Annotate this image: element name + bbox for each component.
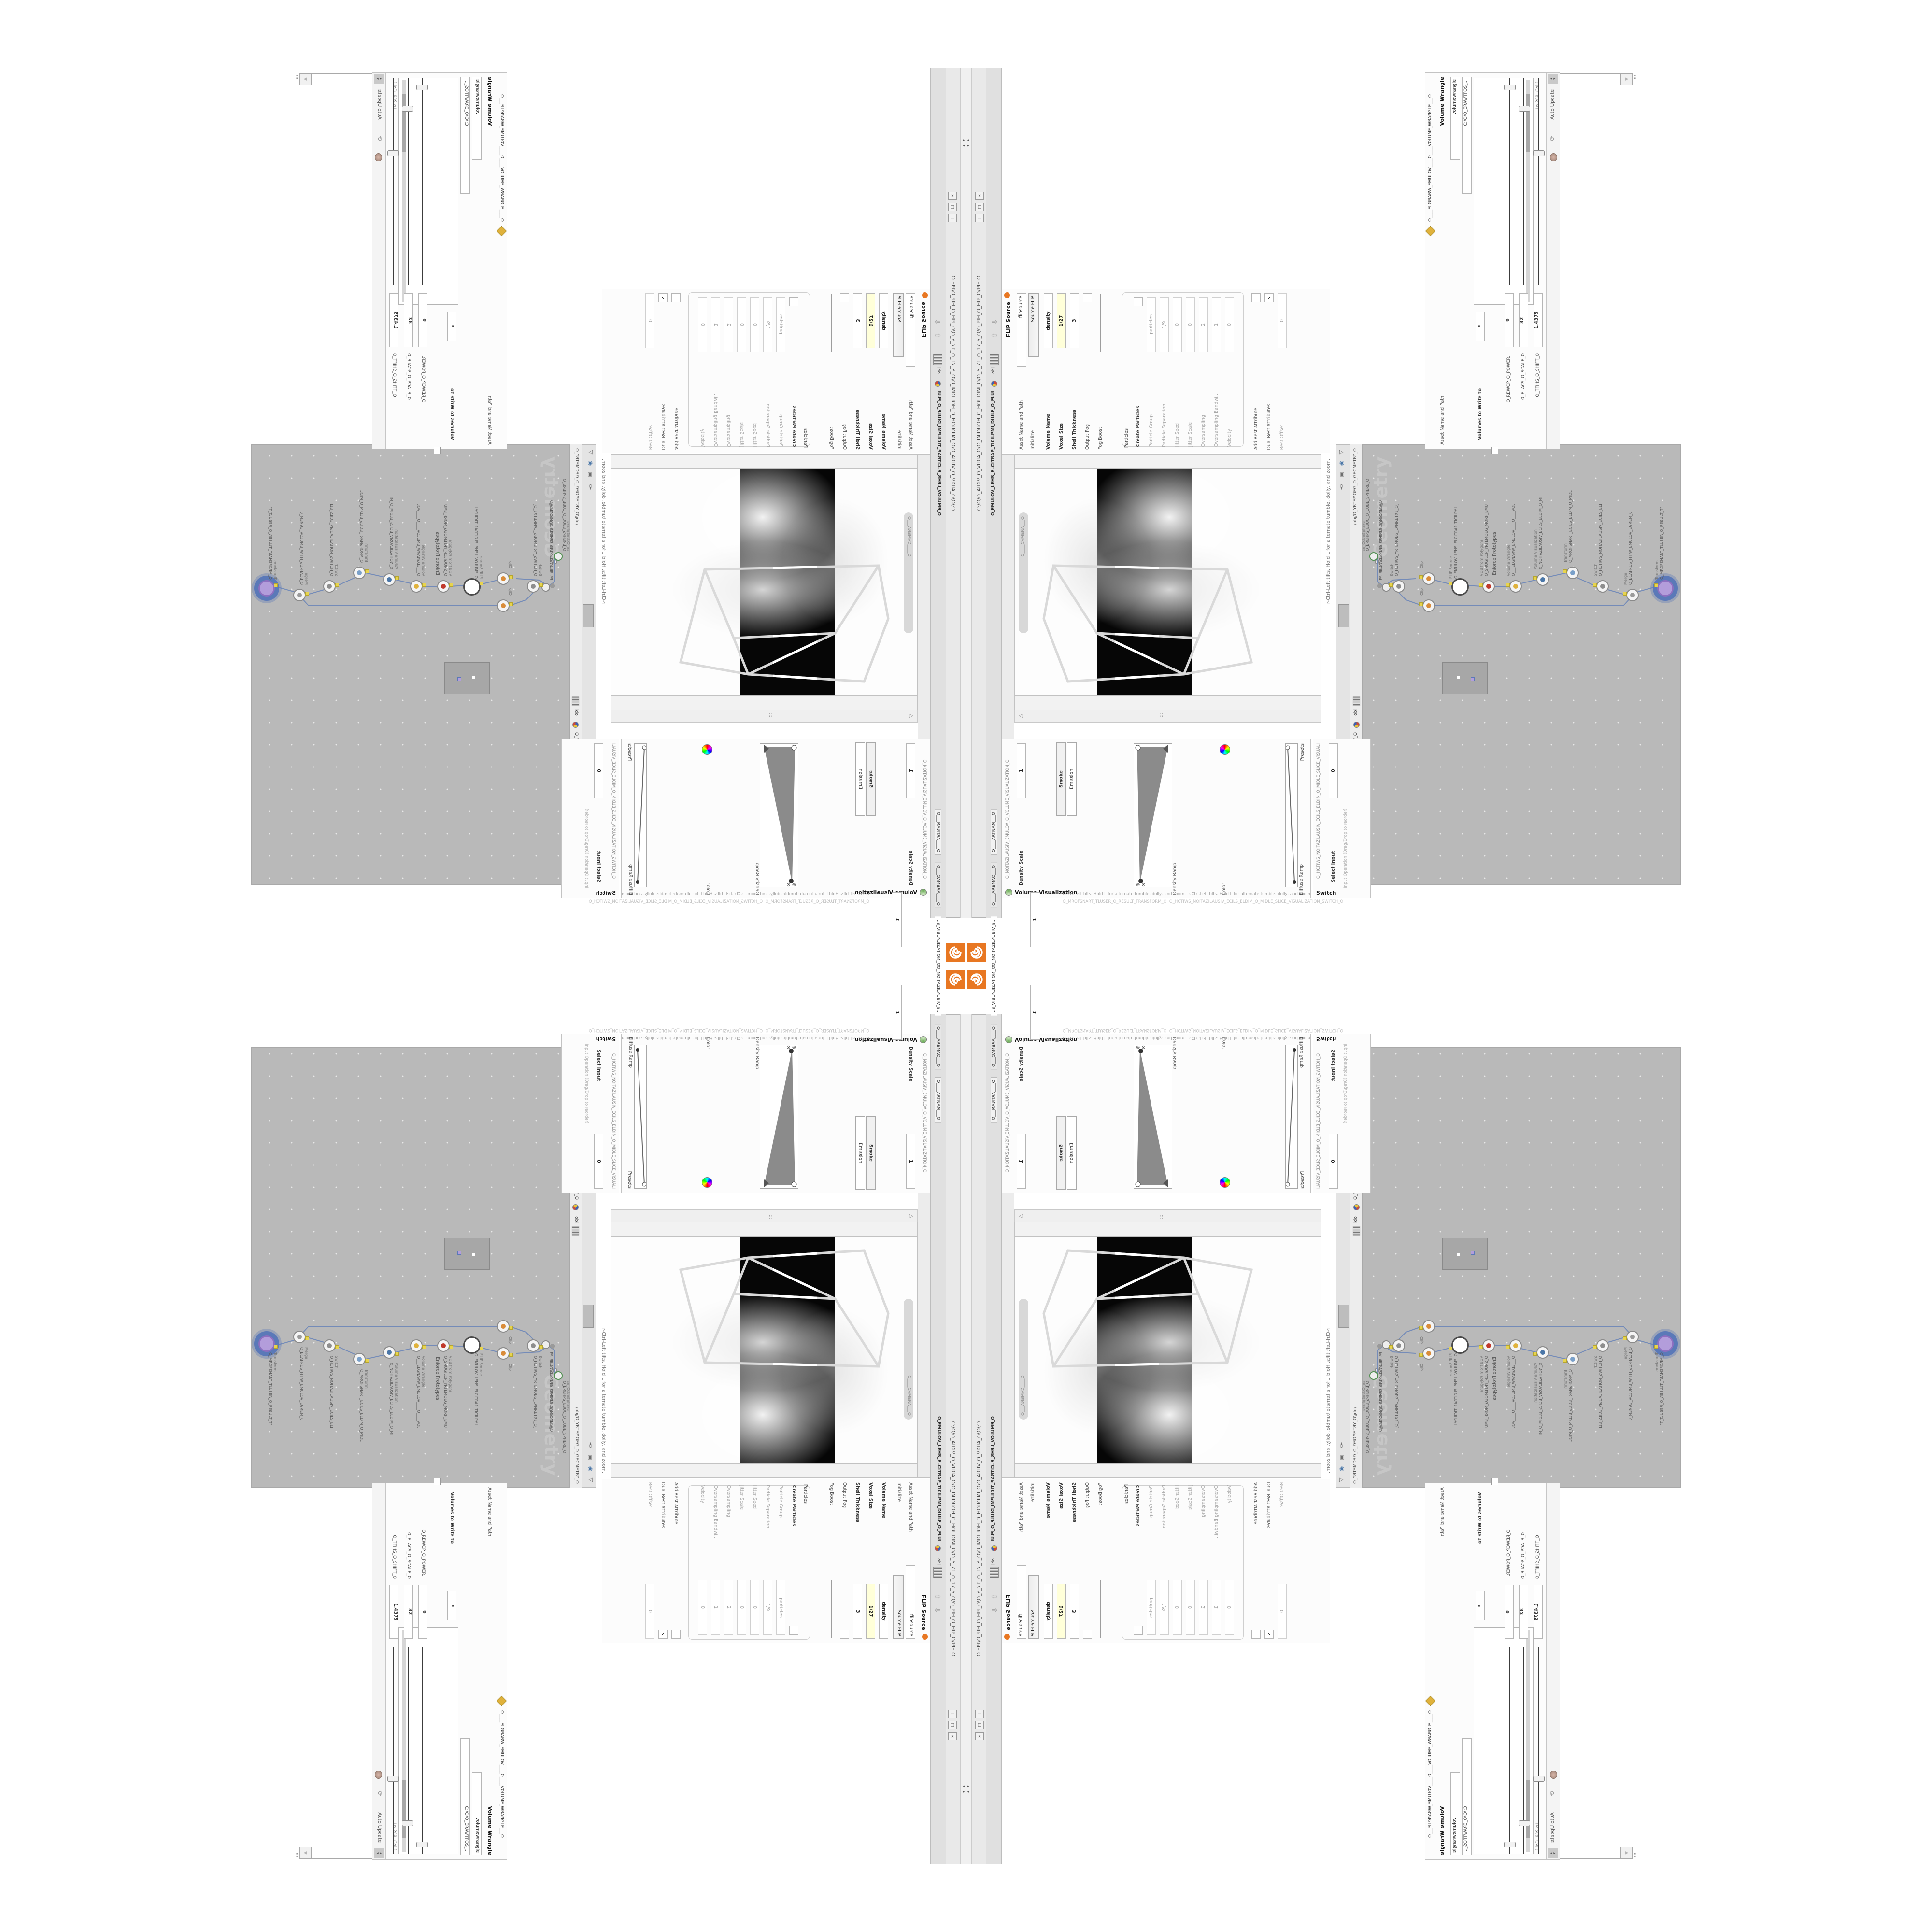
spare-param-value[interactable]: 32	[1519, 293, 1528, 347]
camera-name-pill[interactable]: O____CAMERA___O	[904, 512, 913, 633]
pane-splitter-rail[interactable]: ◂ ▸ ◂ ▸	[960, 1014, 966, 1864]
node-flag[interactable]	[1654, 1345, 1658, 1349]
display-option-icon[interactable]	[1151, 1466, 1163, 1477]
node-flag[interactable]	[1563, 1359, 1567, 1363]
pin-icon[interactable]: ⚲	[1339, 1442, 1344, 1449]
param-column[interactable]: 2 Oversampling	[722, 293, 735, 450]
density-scale-field[interactable]: 1	[1017, 743, 1026, 798]
play-icon[interactable]: ▷	[589, 1477, 593, 1483]
pin-icon[interactable]: ⚲	[588, 1442, 593, 1449]
network-node[interactable]: O_ECAFRUS_HTIW_EMULOV_EGREM_O_MERGE_VOLU…	[293, 589, 306, 601]
param-column[interactable]: Fog Boost	[825, 1479, 838, 1643]
selection-tool-icon[interactable]	[877, 697, 890, 708]
target-icon[interactable]: ◉	[588, 1466, 593, 1473]
volumes-write-field[interactable]: *	[1476, 1591, 1485, 1620]
param-value-field[interactable]: 3	[853, 1584, 862, 1639]
node-flag[interactable]	[365, 1359, 369, 1363]
refresh-icon[interactable]: ⟳	[376, 136, 383, 141]
selection-tool-icon[interactable]	[1083, 1224, 1095, 1235]
tab-volume-wrangle-pane[interactable]: O____ELGNARW_EMULOV____O____VOLUME_WRANG…	[1428, 77, 1433, 222]
selection-tool-icon[interactable]	[1096, 697, 1109, 708]
network-node[interactable]: O_MROFSNART_ECILS_ELDIM_O_MIDLE_SLICE_TR…	[1566, 1353, 1579, 1365]
param-value-field[interactable]	[840, 293, 849, 302]
color-wheel-icon[interactable]	[1220, 744, 1230, 755]
presets2-button[interactable]: Presets	[1300, 1171, 1305, 1189]
param-value-field[interactable]: ✔	[658, 293, 668, 302]
param-value-field[interactable]: ✔	[1264, 293, 1274, 302]
node-flag[interactable]	[1449, 582, 1452, 585]
display-option-icon[interactable]	[1042, 1466, 1055, 1477]
tab-camera[interactable]: O____AREMAC___O	[935, 863, 941, 908]
selection-tool-icon[interactable]	[769, 697, 781, 708]
selection-tool-icon[interactable]	[782, 1224, 795, 1235]
nav-back-icon[interactable]: ◁	[909, 1213, 913, 1220]
param-value-field[interactable]: 1/27	[1057, 293, 1066, 348]
param-value-field[interactable]: 0	[1225, 297, 1234, 352]
param-column[interactable]: Fog Boost	[1094, 1479, 1107, 1643]
param-column[interactable]: Add Rest Attribute	[1250, 289, 1263, 453]
selection-tool-icon[interactable]	[864, 697, 876, 708]
network-node[interactable]: O_SNOGILOP_YRTEMOEG_MORF_EMULOV_BDV_O_VD…	[437, 1339, 450, 1352]
selection-tool-icon[interactable]	[742, 1224, 754, 1235]
display-option-icon[interactable]	[1151, 455, 1163, 466]
node-flag[interactable]	[509, 602, 513, 606]
volumes-write-column[interactable]: * Volumes to Write to	[445, 308, 458, 443]
asset-name-field[interactable]: flipsource	[906, 293, 915, 367]
display-option-icon[interactable]	[1056, 1466, 1068, 1477]
obj-slate-icon[interactable]	[933, 1567, 942, 1578]
display-option-icon[interactable]	[1191, 455, 1204, 466]
param-column[interactable]: 0 Velocity	[1223, 1482, 1236, 1639]
param-column[interactable]: 1 Oversampling Bandwi...	[1210, 293, 1223, 450]
tab-volume-wrangle-pane[interactable]: O____ELGNARW_EMULOV____O____VOLUME_WRANG…	[499, 1710, 504, 1855]
param-column[interactable]: 0 Rest Offset	[643, 289, 656, 453]
window-titlebar[interactable]: × □ — C:/O/O_AIDIV_O_VIDIA_O/O_INIDUOH_O…	[946, 68, 960, 918]
diffuse-ramp-editor[interactable]	[634, 1045, 647, 1189]
network-node[interactable]: JBD.W03.PETS.TRPO.LS.D_5SUNEG_O_GENESIS_…	[1377, 1344, 1382, 1349]
pane-scroll-handle[interactable]	[1338, 604, 1349, 627]
density-scale-column[interactable]: 1 Density Scale	[1015, 1044, 1028, 1193]
target-icon[interactable]: ◉	[1339, 1466, 1344, 1473]
selection-tool-icon[interactable]	[1123, 1224, 1136, 1235]
diffuse-ramp-editor[interactable]	[1285, 1045, 1298, 1189]
obj-badge-label[interactable]: obj	[991, 367, 996, 374]
selection-tool-icon[interactable]	[1083, 697, 1095, 708]
tab-visualization[interactable]: O_NOITAZILAUSIV_E...	[991, 966, 997, 1016]
minimize-icon[interactable]: —	[975, 214, 984, 222]
param-value-field[interactable]: 1	[1212, 297, 1221, 352]
spare-param-slider[interactable]: 6O_REWOP_O_POWER...	[1503, 78, 1516, 445]
tab-visualization[interactable]: O_NOITAZILAUSIV_E...	[991, 916, 997, 966]
diffuse-ramp-editor[interactable]	[1285, 743, 1298, 887]
selection-tool-icon[interactable]	[837, 697, 849, 708]
display-option-icon[interactable]	[701, 455, 714, 466]
param-column[interactable]: Output Fog	[1081, 1479, 1094, 1643]
display-option-icon[interactable]	[1083, 1466, 1095, 1477]
node-flag[interactable]	[395, 576, 399, 580]
shadow-scale-field[interactable]: 1	[893, 892, 902, 947]
auto-update-selector[interactable]: Auto Update	[377, 1812, 382, 1843]
enforce-prototypes-checkbox[interactable]	[434, 447, 441, 454]
presets2-button[interactable]: Presets	[627, 1171, 632, 1189]
volumes-write-column[interactable]: * Volumes to Write to	[1474, 308, 1487, 443]
selection-tool-icon[interactable]	[877, 1224, 890, 1235]
maximize-icon[interactable]: □	[948, 1721, 957, 1729]
param-column[interactable]: Output Fog	[1081, 289, 1094, 453]
param-value-field[interactable]: particles	[776, 1580, 785, 1635]
wrangle-path-field[interactable]: C:/O/O_ERAWTFOS_...	[1462, 1738, 1472, 1855]
presets2-button[interactable]: Presets	[1300, 743, 1305, 761]
window-titlebar[interactable]: × □ — C:/O/O_AIDIV_O_VIDIA_O/O_INIDUOH_O…	[972, 68, 986, 918]
display-option-icon[interactable]	[1218, 455, 1231, 466]
network-node[interactable]: Clip	[497, 599, 510, 612]
playbar-next-button[interactable]: ▶	[1621, 73, 1633, 85]
network-node[interactable]: Clip	[1422, 1347, 1435, 1360]
network-node[interactable]: JBD.W03.PETS.TRPO.LS.D_5SUNEG_O_GENESIS_…	[1377, 583, 1382, 588]
selection-tool-icon[interactable]	[769, 1224, 781, 1235]
selection-tool-icon[interactable]	[1164, 1224, 1177, 1235]
network-node[interactable]: O_SNOGILOP_YRTEMOEG_MORF_EMULOV_BDV_O_VD…	[1482, 580, 1495, 593]
param-column[interactable]: 0 Rest Offset	[643, 1479, 656, 1643]
param-value-field[interactable]	[789, 1626, 798, 1635]
selection-tool-icon[interactable]	[1042, 1224, 1055, 1235]
selection-tool-icon[interactable]	[1164, 697, 1177, 708]
param-column[interactable]: 0 Jitter Seed	[1171, 293, 1184, 450]
viewport-tool-icon[interactable]	[1002, 1412, 1014, 1423]
param-value-field[interactable]	[789, 297, 798, 306]
pin-icon[interactable]: ⚲	[1339, 483, 1344, 490]
param-value-field[interactable]: 0	[737, 297, 746, 352]
tab-mantra[interactable]: O____ARTNAM___O	[991, 1077, 997, 1122]
select-input-column[interactable]: 0 Select Input	[1327, 739, 1340, 885]
drag-grip[interactable]: ⠿	[1160, 1213, 1163, 1219]
shadow-scale-column[interactable]: 1 Shadow Scale	[1028, 888, 1041, 966]
display-option-icon[interactable]	[1096, 1466, 1109, 1477]
param-column[interactable]: density Volume Name	[1042, 289, 1055, 453]
select-input-field[interactable]: 0	[594, 743, 603, 798]
nav-back-icon[interactable]: ◁	[1019, 712, 1023, 719]
param-column[interactable]: 2 Oversampling	[1197, 293, 1210, 450]
shadow-scale-column[interactable]: 1 Shadow Scale	[1028, 966, 1041, 1044]
param-column[interactable]: Fog Boost	[1094, 289, 1107, 453]
pane-menu-icon[interactable]: ◂ ▸	[374, 74, 384, 84]
density-ramp-editor[interactable]: ⊕ ⊗	[760, 1045, 798, 1189]
network-node[interactable]: O___ELGNARW_EMULOV____O____VOLUME_WRANGL…	[410, 1339, 423, 1352]
node-flag[interactable]	[1593, 1345, 1597, 1349]
display-option-icon[interactable]	[1083, 455, 1095, 466]
density-scale-column[interactable]: 1 Density Scale	[904, 739, 917, 888]
node-flag[interactable]	[539, 583, 543, 587]
tab-mantra[interactable]: O____ARTNAM___O	[991, 810, 997, 855]
param-column[interactable]: 0 Velocity	[1223, 293, 1236, 450]
network-editor[interactable]: Geometry O_EREHPS_EBUC_O_CUBE_SPHERE_O	[1362, 1047, 1681, 1488]
drag-grip[interactable]: ⠿	[1160, 713, 1163, 719]
shadow-scale-column[interactable]: 1 Shadow Scale	[891, 966, 904, 1044]
node-flag[interactable]	[1623, 592, 1627, 596]
viewport-render-area[interactable]: O____CAMERA___O	[1014, 1236, 1321, 1463]
display-option-icon[interactable]	[1110, 1466, 1122, 1477]
param-column[interactable]: Create Particles	[1132, 1482, 1145, 1639]
param-column[interactable]: particles Particle Group	[774, 293, 787, 450]
node-flag[interactable]	[1593, 583, 1597, 587]
memory-icon[interactable]	[375, 153, 382, 161]
tab-visualization[interactable]: O_NOITAZILAUSIV_E...	[935, 966, 941, 1016]
network-node[interactable]: O_MROFSNART_ECILS_ELDIM_O_MIDLE_SLICE_TR…	[353, 1353, 366, 1365]
node-flag[interactable]	[1389, 1345, 1393, 1349]
spare-param-value[interactable]: 6	[1505, 293, 1514, 347]
playbar-next-button[interactable]: ▶	[299, 73, 311, 85]
tab-mantra[interactable]: O____ARTNAM___O	[935, 810, 941, 855]
selection-tool-icon[interactable]	[823, 697, 836, 708]
drag-grip[interactable]: ⠿	[769, 1213, 772, 1219]
param-value-field[interactable]: 0	[698, 297, 707, 352]
viewport-tool-icon[interactable]	[918, 509, 930, 520]
density-scale-field[interactable]: 1	[1017, 1134, 1026, 1189]
splitter-arrows-icon[interactable]: ◂ ▸	[966, 138, 970, 148]
volume-wrangle-header[interactable]: Volume Wrangle	[1439, 1806, 1445, 1855]
display-option-icon[interactable]	[1069, 455, 1082, 466]
memory-icon[interactable]	[375, 1771, 382, 1779]
network-tab-obj[interactable]: obj	[1353, 709, 1358, 716]
param-value-field[interactable]	[671, 1630, 681, 1639]
playbar-next-button[interactable]: ▶	[1621, 1847, 1633, 1859]
param-value-field[interactable]: 0	[750, 297, 759, 352]
param-value-field[interactable]: 2	[1199, 297, 1208, 352]
enforce-prototypes-column[interactable]: Enforce Prototypes	[1488, 1354, 1501, 1489]
display-option-icon[interactable]	[904, 455, 917, 466]
network-minimap[interactable]	[444, 1238, 490, 1270]
network-node[interactable]: O_NOITAZILAUSIV_ECILS_ELDIM_O_MIDLE_SLIC…	[383, 573, 396, 586]
network-node[interactable]: O_EMULOV_LEHS_ELCITRAP_TICILPMI_DIULF_O_…	[1451, 578, 1469, 596]
node-flag[interactable]	[480, 582, 483, 585]
wrangle-asset-field[interactable]: volumewrangle	[1450, 77, 1460, 160]
spare-param-slider[interactable]: 1.4375O_TFIHS_O_SHIFT_O	[1532, 1487, 1545, 1854]
display-option-icon[interactable]	[877, 455, 890, 466]
tab-flip-source-pane[interactable]: O_EMULOV_LEHS_ELCITRAP_TICILPMI_DIULF_O_…	[991, 1416, 995, 1542]
selection-tool-icon[interactable]	[904, 1224, 917, 1235]
enforce-prototypes-column[interactable]: Enforce Prototypes	[431, 1354, 444, 1489]
asset-name-field[interactable]: flipsource	[1017, 293, 1026, 367]
viewport-tool-icon[interactable]	[918, 495, 930, 507]
initialize-menu[interactable]: Source FLIP	[893, 1575, 904, 1639]
node-flag[interactable]	[449, 583, 453, 587]
param-value-field[interactable]: 0	[1186, 297, 1195, 352]
spare-param-value[interactable]: 6	[418, 1585, 427, 1639]
minimize-icon[interactable]: —	[975, 1710, 984, 1718]
node-flag[interactable]	[1506, 583, 1510, 587]
selection-tool-icon[interactable]	[1069, 1224, 1082, 1235]
shadow-scale-field[interactable]: 1	[893, 985, 902, 1040]
volumes-write-field[interactable]: *	[447, 1591, 456, 1620]
param-column[interactable]: 1 Oversampling Bandwi...	[1210, 1482, 1223, 1639]
enforce-prototypes-checkbox[interactable]	[434, 1478, 441, 1485]
param-column[interactable]: 1/9 Particle Separation	[1158, 293, 1171, 450]
display-option-icon[interactable]	[769, 455, 781, 466]
node-flag[interactable]	[422, 1345, 426, 1349]
tab-flip-source-pane[interactable]: O_EMULOV_LEHS_ELCITRAP_TICILPMI_DIULF_O_…	[991, 390, 995, 516]
param-column[interactable]: 0 Jitter Scale	[1184, 293, 1197, 450]
network-node[interactable]: O_ECAFRUS_HTIW_EMULOV_EGREM_O_MERGE_VOLU…	[1626, 589, 1639, 601]
display-option-icon[interactable]	[864, 1466, 876, 1477]
wrangle-asset-field[interactable]: volumewrangle	[472, 1772, 482, 1855]
network-editor[interactable]: Geometry O_EREHPS_EBUC_O_CUBE_SPHERE_O	[1362, 444, 1681, 885]
breadcrumb[interactable]: /obj/O_YRTEMOEG_O_GEOMETRY_O	[574, 448, 579, 525]
display-option-icon[interactable]	[1123, 1466, 1136, 1477]
arrow-up-icon[interactable]: ⇧	[990, 1593, 999, 1600]
param-column[interactable]: 1/9 Particle Separation	[761, 293, 774, 450]
spare-param-slider[interactable]: 32O_ELACS_O_SCALE_O	[401, 1487, 415, 1854]
param-column[interactable]: 1/27 Voxel Size	[1055, 1479, 1068, 1643]
wrangle-asset-field[interactable]: volumewrangle	[1450, 1772, 1460, 1855]
close-icon[interactable]: ×	[948, 192, 957, 200]
display-option-icon[interactable]	[1029, 1466, 1041, 1477]
param-value-field[interactable]: 0	[645, 293, 654, 348]
param-column[interactable]: density Volume Name	[877, 289, 890, 453]
color-wheel-icon[interactable]	[702, 744, 712, 755]
selection-tool-icon[interactable]	[1110, 697, 1122, 708]
param-value-field[interactable]: 1/9	[763, 297, 772, 352]
spare-param-value[interactable]: 1.4375	[389, 293, 398, 347]
flip-source-header[interactable]: FLIP Source	[1005, 302, 1011, 337]
selection-tool-icon[interactable]	[810, 1224, 822, 1235]
spare-param-slider[interactable]: 1.4375O_TFIHS_O_SHIFT_O	[387, 78, 400, 445]
node-flag[interactable]	[335, 1345, 339, 1349]
viewport-render-area[interactable]: O____CAMERA___O	[611, 1236, 918, 1463]
param-value-field[interactable]: 1	[711, 297, 720, 352]
pane-scroll-handle[interactable]	[583, 604, 594, 627]
display-option-icon[interactable]	[1056, 455, 1068, 466]
tab-visualization[interactable]: O_NOITAZILAUSIV_E...	[935, 916, 941, 966]
network-node[interactable]: O_NOITAZILAUSIV_ECILS_ELDIM_O_MIDLE_SLIC…	[1536, 1346, 1549, 1359]
tab-camera[interactable]: O____AREMAC___O	[935, 1024, 941, 1069]
network-node[interactable]: O_EMULOV_LEHS_ELCITRAP_TICILPMI_DIULF_O_…	[463, 1336, 481, 1354]
spare-param-slider[interactable]: 1.4375O_TFIHS_O_SHIFT_O	[1532, 78, 1545, 445]
network-editor[interactable]: Geometry O_EREHPS_EBUC_O_CUBE_SPHERE_O	[251, 1047, 570, 1488]
selection-tool-icon[interactable]	[904, 697, 917, 708]
tab-camera[interactable]: O____AREMAC___O	[991, 1024, 997, 1069]
display-option-icon[interactable]	[877, 1466, 890, 1477]
node-flag[interactable]	[274, 583, 278, 587]
display-option-icon[interactable]	[891, 1466, 903, 1477]
selection-tool-icon[interactable]	[891, 697, 903, 708]
playbar-grip[interactable]: ⠿	[1634, 1851, 1637, 1857]
param-value-field[interactable]: 1	[711, 1580, 720, 1635]
selection-tool-icon[interactable]	[1056, 1224, 1068, 1235]
select-input-field[interactable]: 0	[1329, 1134, 1338, 1189]
display-option-icon[interactable]	[755, 455, 768, 466]
param-value-field[interactable]: 3	[1070, 293, 1079, 348]
color-wheel-icon[interactable]	[1220, 1177, 1230, 1188]
param-slider[interactable]	[831, 1580, 832, 1638]
param-value-field[interactable]	[840, 1630, 849, 1639]
selection-tool-icon[interactable]	[864, 1224, 876, 1235]
memory-icon[interactable]	[1550, 153, 1557, 161]
enforce-prototypes-column[interactable]: Enforce Prototypes	[1488, 443, 1501, 578]
selection-tool-icon[interactable]	[1137, 697, 1150, 708]
display-option-icon[interactable]	[715, 1466, 727, 1477]
arrow-up-icon[interactable]: ⇧	[990, 332, 999, 339]
param-column[interactable]: particles Particle Group	[1145, 293, 1158, 450]
selection-tool-icon[interactable]	[1056, 697, 1068, 708]
viewport-render-area[interactable]: O____CAMERA___O	[1014, 469, 1321, 696]
viewport-tool-icon[interactable]	[918, 468, 930, 480]
spare-param-value[interactable]: 6	[1505, 1585, 1514, 1639]
spare-param-slider[interactable]: 32O_ELACS_O_SCALE_O	[1517, 78, 1531, 445]
display-option-icon[interactable]	[728, 455, 741, 466]
display-option-icon[interactable]	[1110, 455, 1122, 466]
viewport-tool-icon[interactable]	[1002, 509, 1014, 520]
param-column[interactable]: 1/27 Voxel Size	[864, 1479, 877, 1643]
param-value-field[interactable]: 1/9	[1160, 297, 1169, 352]
network-node[interactable]: O___ELGNARW_EMULOV____O____VOLUME_WRANGL…	[1509, 580, 1522, 593]
tab-emission[interactable]: Emission	[1067, 1116, 1077, 1190]
param-column[interactable]: Create Particles	[1132, 293, 1145, 450]
frame-icon[interactable]: ▣	[1339, 1455, 1344, 1461]
network-node[interactable]: O_ECAFRUS_HTIW_EMULOV_EGREM_O_MERGE_VOLU…	[1626, 1331, 1639, 1343]
param-column[interactable]: 3 Shell Thickness	[1068, 1479, 1081, 1643]
network-editor[interactable]: Geometry O_EREHPS_EBUC_O_CUBE_SPHERE_O	[251, 444, 570, 885]
node-flag[interactable]	[1533, 1352, 1537, 1356]
display-option-icon[interactable]	[837, 455, 849, 466]
param-column[interactable]: ✔ Dual Rest Attributes	[656, 289, 669, 453]
obj-slate-icon[interactable]	[990, 1567, 999, 1578]
network-node[interactable]: O_HCTIWS_NOITAZILAUSIV_ECILS_ELDIM_O_MID…	[1596, 1339, 1609, 1352]
network-node[interactable]: Clip	[497, 1320, 510, 1333]
node-flag[interactable]	[422, 583, 426, 587]
param-column[interactable]: Fog Boost	[825, 289, 838, 453]
network-node[interactable]: O_MROFSNART_ECILS_ELDIM_O_MIDLE_SLICE_TR…	[1566, 567, 1579, 579]
select-input-field[interactable]: 0	[1329, 743, 1338, 798]
network-node[interactable]: Clip	[1422, 1320, 1435, 1333]
param-value-field[interactable]: density	[1044, 1584, 1053, 1639]
network-node[interactable]: O_MROFSNART_TLUSER_O_RESULT_TRANSFORM_OT…	[1657, 1335, 1674, 1352]
tab-smoke[interactable]: Smoke	[866, 1116, 876, 1190]
initialize-menu[interactable]: Source FLIP	[893, 293, 904, 357]
network-minimap[interactable]	[444, 662, 490, 694]
spare-param-slider[interactable]: 6O_REWOP_O_POWER...	[1503, 1487, 1516, 1854]
selection-tool-icon[interactable]	[1015, 697, 1028, 708]
param-column[interactable]: 1/9 Particle Separation	[1158, 1482, 1171, 1639]
node-flag[interactable]	[1389, 583, 1393, 587]
selection-tool-icon[interactable]	[782, 697, 795, 708]
viewport-tool-icon[interactable]	[918, 1412, 930, 1423]
flip-source-header[interactable]: FLIP Source	[921, 1595, 927, 1630]
display-option-icon[interactable]	[782, 455, 795, 466]
flip-source-header[interactable]: FLIP Source	[921, 302, 927, 337]
select-input-column[interactable]: 0 Select Input	[592, 739, 605, 885]
diffuse-ramp-editor[interactable]	[634, 743, 647, 887]
display-option-icon[interactable]	[1178, 1466, 1190, 1477]
auto-update-selector[interactable]: Auto Update	[1550, 1812, 1555, 1843]
display-option-icon[interactable]	[1205, 455, 1217, 466]
param-value-field[interactable]: 3	[853, 293, 862, 348]
maximize-icon[interactable]: □	[975, 203, 984, 211]
param-value-field[interactable]: 1/27	[1057, 1584, 1066, 1639]
node-flag[interactable]	[1419, 1326, 1423, 1330]
network-minimap[interactable]	[1442, 1238, 1488, 1270]
playbar-grip[interactable]: ⠿	[295, 75, 298, 81]
node-flag[interactable]	[539, 1345, 543, 1349]
volumes-write-column[interactable]: * Volumes to Write to	[445, 1489, 458, 1624]
param-slider[interactable]	[831, 294, 832, 352]
node-flag[interactable]	[1623, 1336, 1627, 1340]
spare-param-value[interactable]: 6	[418, 293, 427, 347]
maximize-icon[interactable]: □	[948, 203, 957, 211]
param-value-field[interactable]: 0	[1173, 1580, 1182, 1635]
selection-tool-icon[interactable]	[850, 697, 863, 708]
network-node[interactable]: O___ELGNARW_EMULOV____O____VOLUME_WRANGL…	[410, 580, 423, 593]
pane-splitter-rail[interactable]: ◂ ▸ ◂ ▸	[960, 68, 966, 918]
